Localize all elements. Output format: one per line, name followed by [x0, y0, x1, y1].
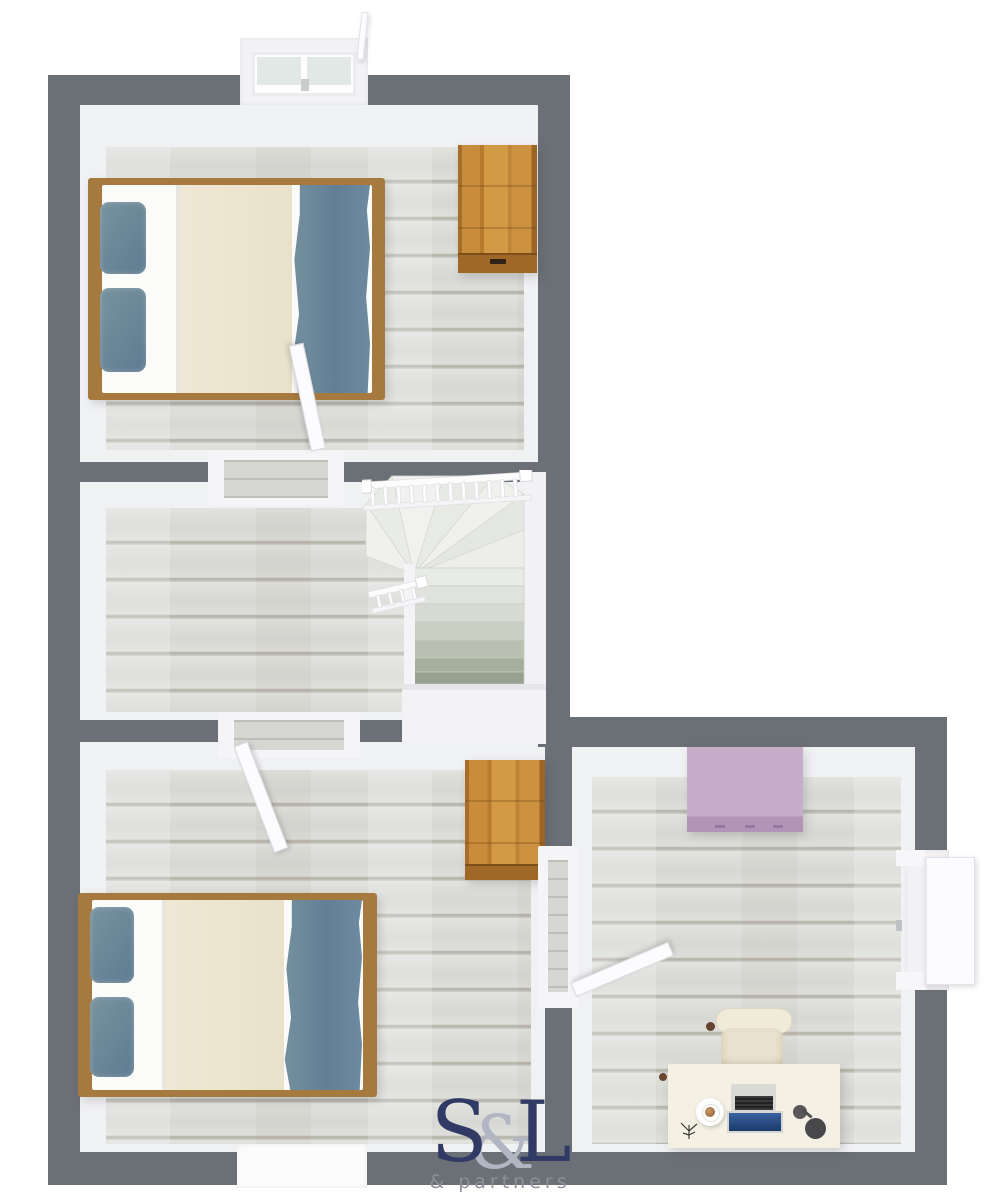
office-door-threshold [548, 860, 568, 992]
office-window-open-sash [924, 857, 975, 985]
wardrobe-detail [773, 825, 783, 828]
wardrobe-detail [745, 825, 755, 828]
pillow [90, 997, 134, 1077]
stair-landing-edge [402, 684, 546, 690]
stair-winder-treads [366, 476, 524, 574]
brand-logo-main: S&L [393, 1094, 607, 1171]
bedroom-top-wardrobe [458, 145, 537, 273]
office-window-ledge-top [896, 850, 926, 866]
desk-plant [676, 1116, 702, 1142]
desk-lamp-base [805, 1118, 826, 1139]
stair-newel-right [520, 470, 533, 482]
chair-armrest [659, 1073, 667, 1081]
pillow [100, 288, 146, 372]
duvet-cream [166, 900, 284, 1090]
stair-newel-left [362, 480, 372, 494]
office-window-handle [896, 920, 902, 931]
bedroom-top-double-bed [88, 178, 385, 400]
bedroom-bottom-wardrobe [465, 760, 545, 880]
office-lilac-wardrobe [687, 747, 803, 832]
brand-letter-s: S [430, 1083, 486, 1181]
wall-left [48, 75, 80, 1185]
winder-staircase [362, 470, 546, 744]
brand-logo: S&L & partners [393, 1094, 607, 1193]
stair-newel-mid [415, 576, 428, 589]
wardrobe-detail [715, 825, 725, 828]
bedroom-top-door-frame [208, 450, 344, 506]
pillow [90, 907, 134, 983]
bedroom-top-window [252, 52, 356, 96]
bedroom-bottom-double-bed [78, 893, 377, 1097]
window-handle [301, 79, 309, 91]
stair-flight-treads [414, 568, 524, 684]
wardrobe-handle [490, 259, 506, 264]
window-pane [257, 57, 301, 85]
bedroom-top-door-threshold [224, 460, 328, 498]
pillow [100, 202, 146, 274]
bed-runner-blue [284, 900, 362, 1090]
office-window-ledge-bottom [896, 972, 926, 990]
window-pane [307, 57, 351, 85]
wall-office-top [538, 717, 947, 747]
wardrobe-drawer [465, 864, 545, 880]
stair-bottom-landing [402, 684, 546, 744]
wardrobe-drawer [458, 253, 537, 273]
duvet-cream [180, 185, 292, 393]
floor-plan-canvas: S&L & partners [0, 0, 999, 1200]
bedroom-bottom-window [237, 1144, 367, 1188]
laptop-keyboard [735, 1096, 773, 1110]
bedroom-bottom-door-threshold [234, 720, 344, 750]
laptop-screen [727, 1111, 783, 1133]
coffee-latte [705, 1107, 715, 1117]
brand-letter-l: L [516, 1083, 570, 1181]
chair-armrest [706, 1022, 715, 1031]
